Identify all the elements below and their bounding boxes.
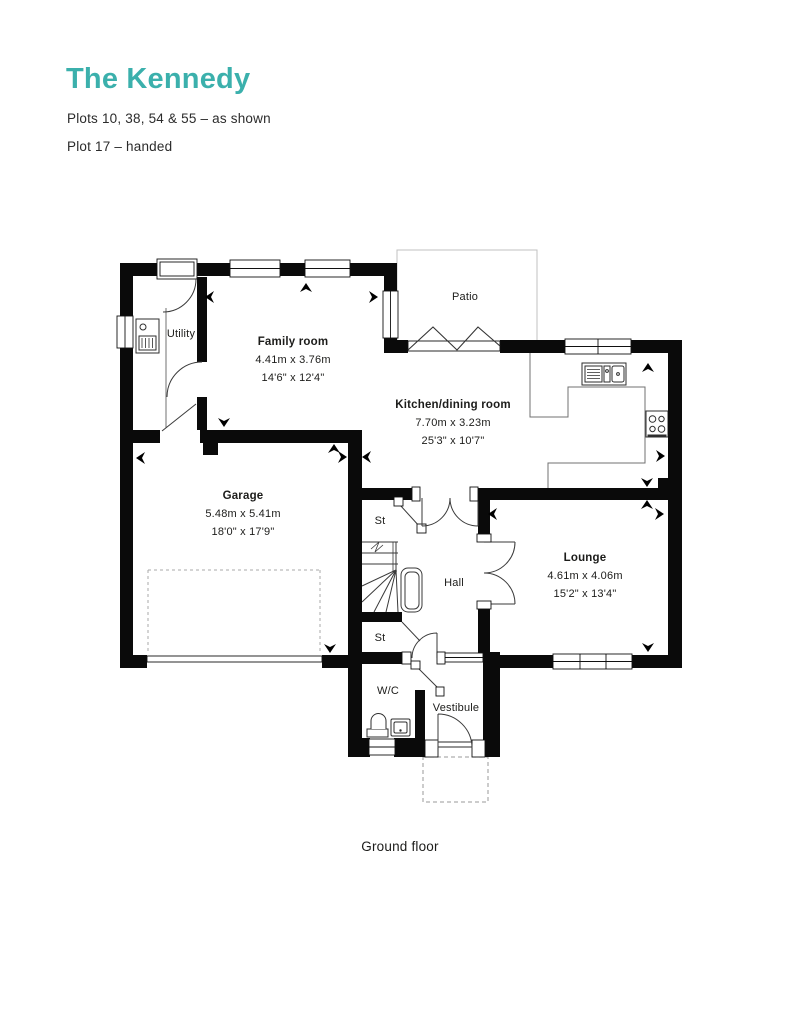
hob-icon bbox=[646, 411, 668, 437]
wc-window bbox=[369, 739, 395, 755]
room-label-wc: W/C bbox=[377, 681, 399, 699]
kitchen-window bbox=[565, 339, 631, 354]
floor-caption: Ground floor bbox=[0, 839, 800, 854]
lounge-window bbox=[553, 654, 632, 669]
family-room-side-window bbox=[383, 291, 398, 338]
hall-bench bbox=[401, 568, 422, 612]
room-label-patio: Patio bbox=[452, 287, 478, 305]
garage-door-dashed bbox=[148, 570, 320, 654]
family-room-window-2 bbox=[305, 260, 350, 277]
room-label-kitchen-dining: Kitchen/dining room 7.70m x 3.23m 25'3" … bbox=[395, 396, 511, 450]
toilet-icon bbox=[367, 714, 388, 737]
utility-side-window bbox=[117, 316, 133, 348]
basin-icon bbox=[391, 719, 410, 736]
room-label-st-upper: St bbox=[375, 511, 386, 529]
room-label-vestibule: Vestibule bbox=[433, 698, 479, 716]
room-label-st-lower: St bbox=[375, 628, 386, 646]
floorplan-page: The Kennedy Plots 10, 38, 54 & 55 – as s… bbox=[0, 0, 800, 1036]
washing-machine-icon bbox=[136, 319, 159, 353]
room-label-hall: Hall bbox=[444, 573, 464, 591]
room-label-garage: Garage 5.48m x 5.41m 18'0" x 17'9" bbox=[205, 487, 280, 541]
floorplan-drawing bbox=[0, 0, 800, 1036]
room-label-utility: Utility bbox=[167, 324, 195, 342]
front-door-frames bbox=[425, 740, 485, 757]
garage-door-threshold bbox=[147, 656, 322, 662]
room-label-lounge: Lounge 4.61m x 4.06m 15'2" x 13'4" bbox=[547, 549, 622, 603]
room-label-family-room: Family room 4.41m x 3.76m 14'6" x 12'4" bbox=[255, 333, 330, 387]
porch-dashed-outline bbox=[423, 757, 488, 802]
staircase bbox=[362, 542, 398, 612]
utility-entrance-door bbox=[157, 259, 197, 279]
hall-vestibule-glazed-panel bbox=[445, 653, 483, 662]
family-room-window-1 bbox=[230, 260, 280, 277]
sink-icon bbox=[582, 363, 626, 385]
